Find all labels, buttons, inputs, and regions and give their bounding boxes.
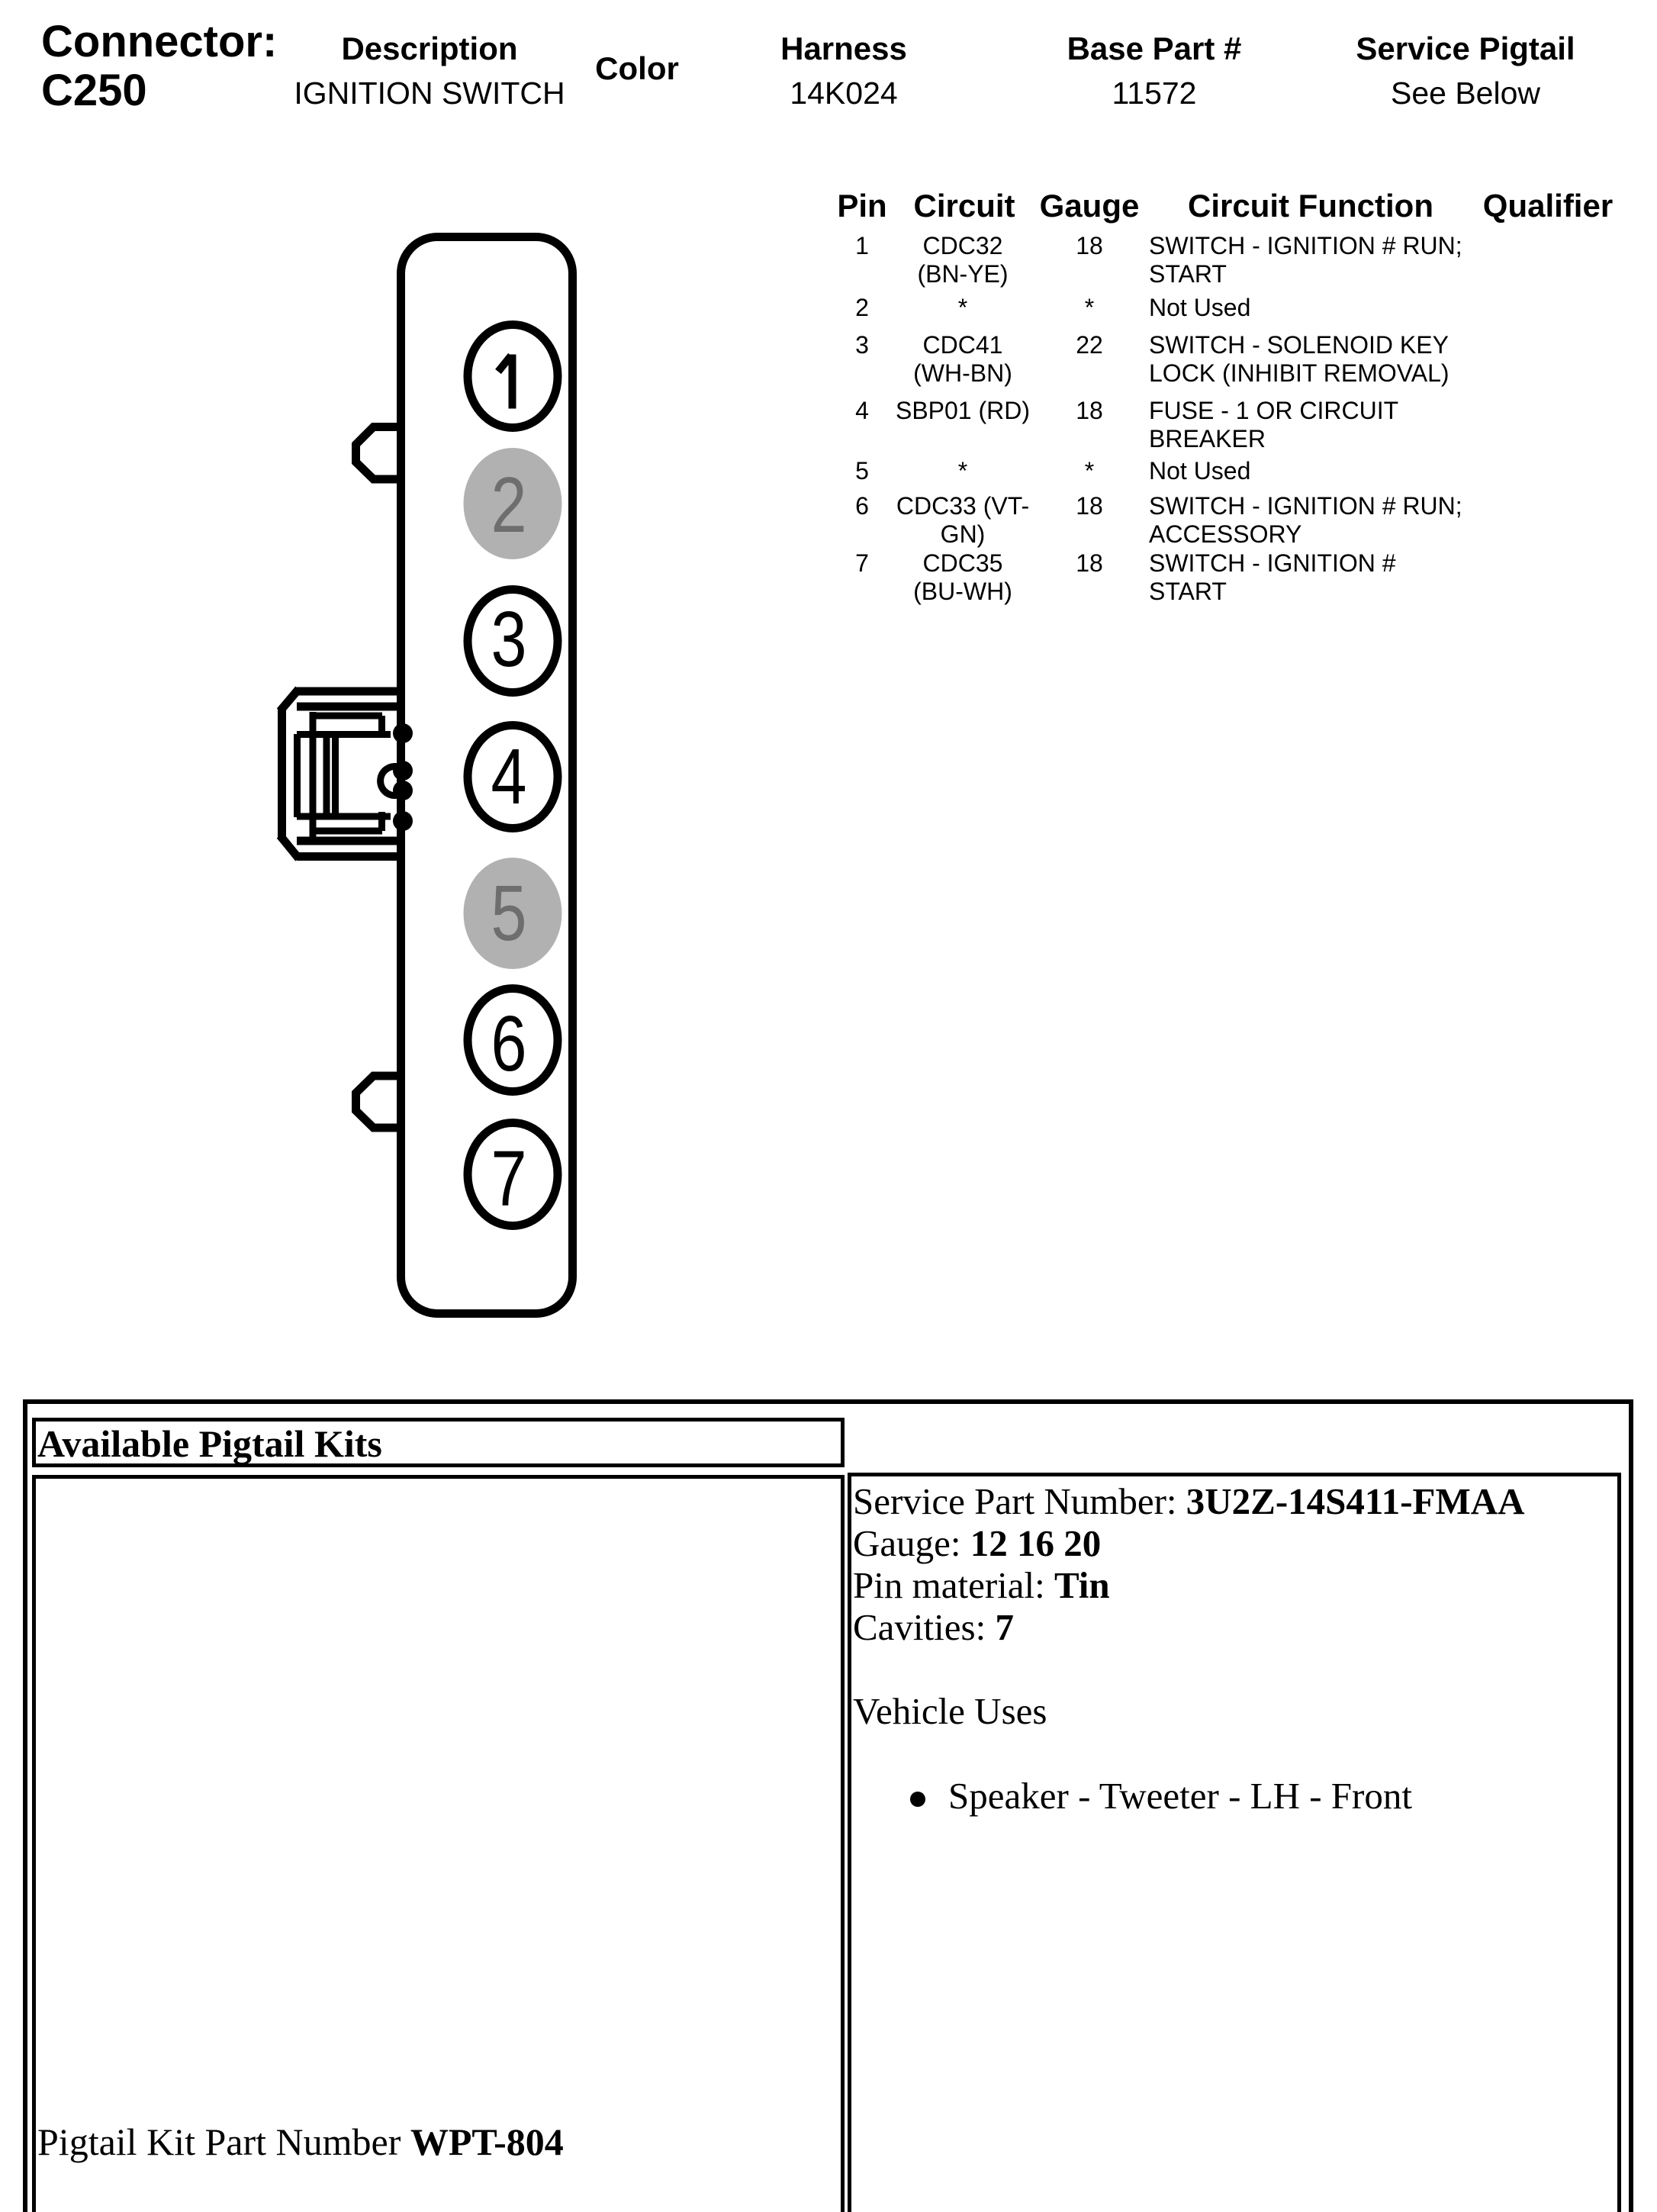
svg-text:3: 3 (491, 595, 527, 683)
svg-text:4: 4 (491, 733, 527, 820)
svg-text:6: 6 (491, 1000, 527, 1087)
svg-text:5: 5 (491, 869, 527, 957)
svg-text:2: 2 (491, 461, 527, 549)
svg-text:7: 7 (491, 1135, 527, 1222)
